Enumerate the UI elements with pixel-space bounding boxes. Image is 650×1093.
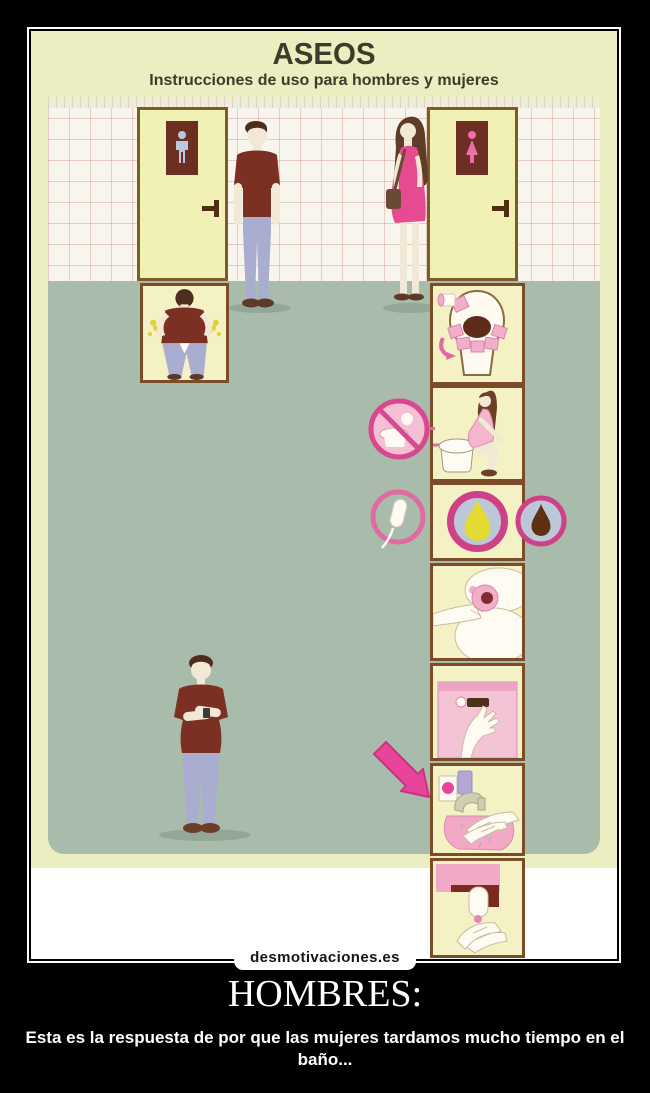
mens-door-sign: [166, 121, 198, 175]
pink-arrow-icon: [371, 731, 437, 803]
poster-title: ASEOS: [46, 36, 603, 72]
caption-title: HOMBRES:: [0, 972, 650, 1016]
male-figure-icon: [172, 130, 192, 166]
poster-image: ASEOS Instrucciones de uso para hombres …: [31, 31, 617, 959]
female-figure-icon: [462, 130, 482, 166]
panel-wipe: [430, 563, 525, 661]
panel-wash-hands: [430, 763, 525, 856]
dry-hands-illustration: [433, 861, 522, 955]
watermark: desmotivaciones.es: [234, 947, 416, 970]
hover-over-toilet-illustration: [433, 388, 522, 479]
demotivational-poster-page: ASEOS Instrucciones de uso para hombres …: [0, 0, 650, 1093]
poop-drop-icon: [513, 493, 569, 549]
door-handle: [492, 206, 509, 211]
no-sitting-icon: [364, 394, 434, 464]
panel-hover-over-toilet: [430, 385, 525, 482]
cover-seat-illustration: [433, 286, 522, 382]
panel-cover-seat-with-paper: [430, 283, 525, 385]
caption-body: Esta es la respuesta de por que las muje…: [25, 1027, 625, 1072]
flush-illustration: [433, 666, 522, 758]
tampon-icon: [367, 488, 429, 554]
panel-pee-standing: [140, 283, 229, 383]
man-standing-illustration: [223, 119, 289, 311]
pee-drop-icon: [433, 485, 522, 558]
womens-door-sign: [456, 121, 488, 175]
poster-subtitle: Instrucciones de uso para hombres y muje…: [31, 72, 617, 90]
poster-frame: ASEOS Instrucciones de uso para hombres …: [27, 27, 621, 963]
mens-door: [137, 107, 228, 281]
womens-door: [427, 107, 518, 281]
man-checking-watch-illustration: [153, 653, 249, 839]
wash-hands-illustration: [433, 766, 522, 853]
panel-flush: [430, 663, 525, 761]
panel-pee-drop: [430, 482, 525, 561]
man-peeing-illustration: [143, 286, 226, 380]
wipe-illustration: [433, 566, 522, 658]
door-handle: [202, 206, 219, 211]
panel-dry-hands: [430, 858, 525, 958]
